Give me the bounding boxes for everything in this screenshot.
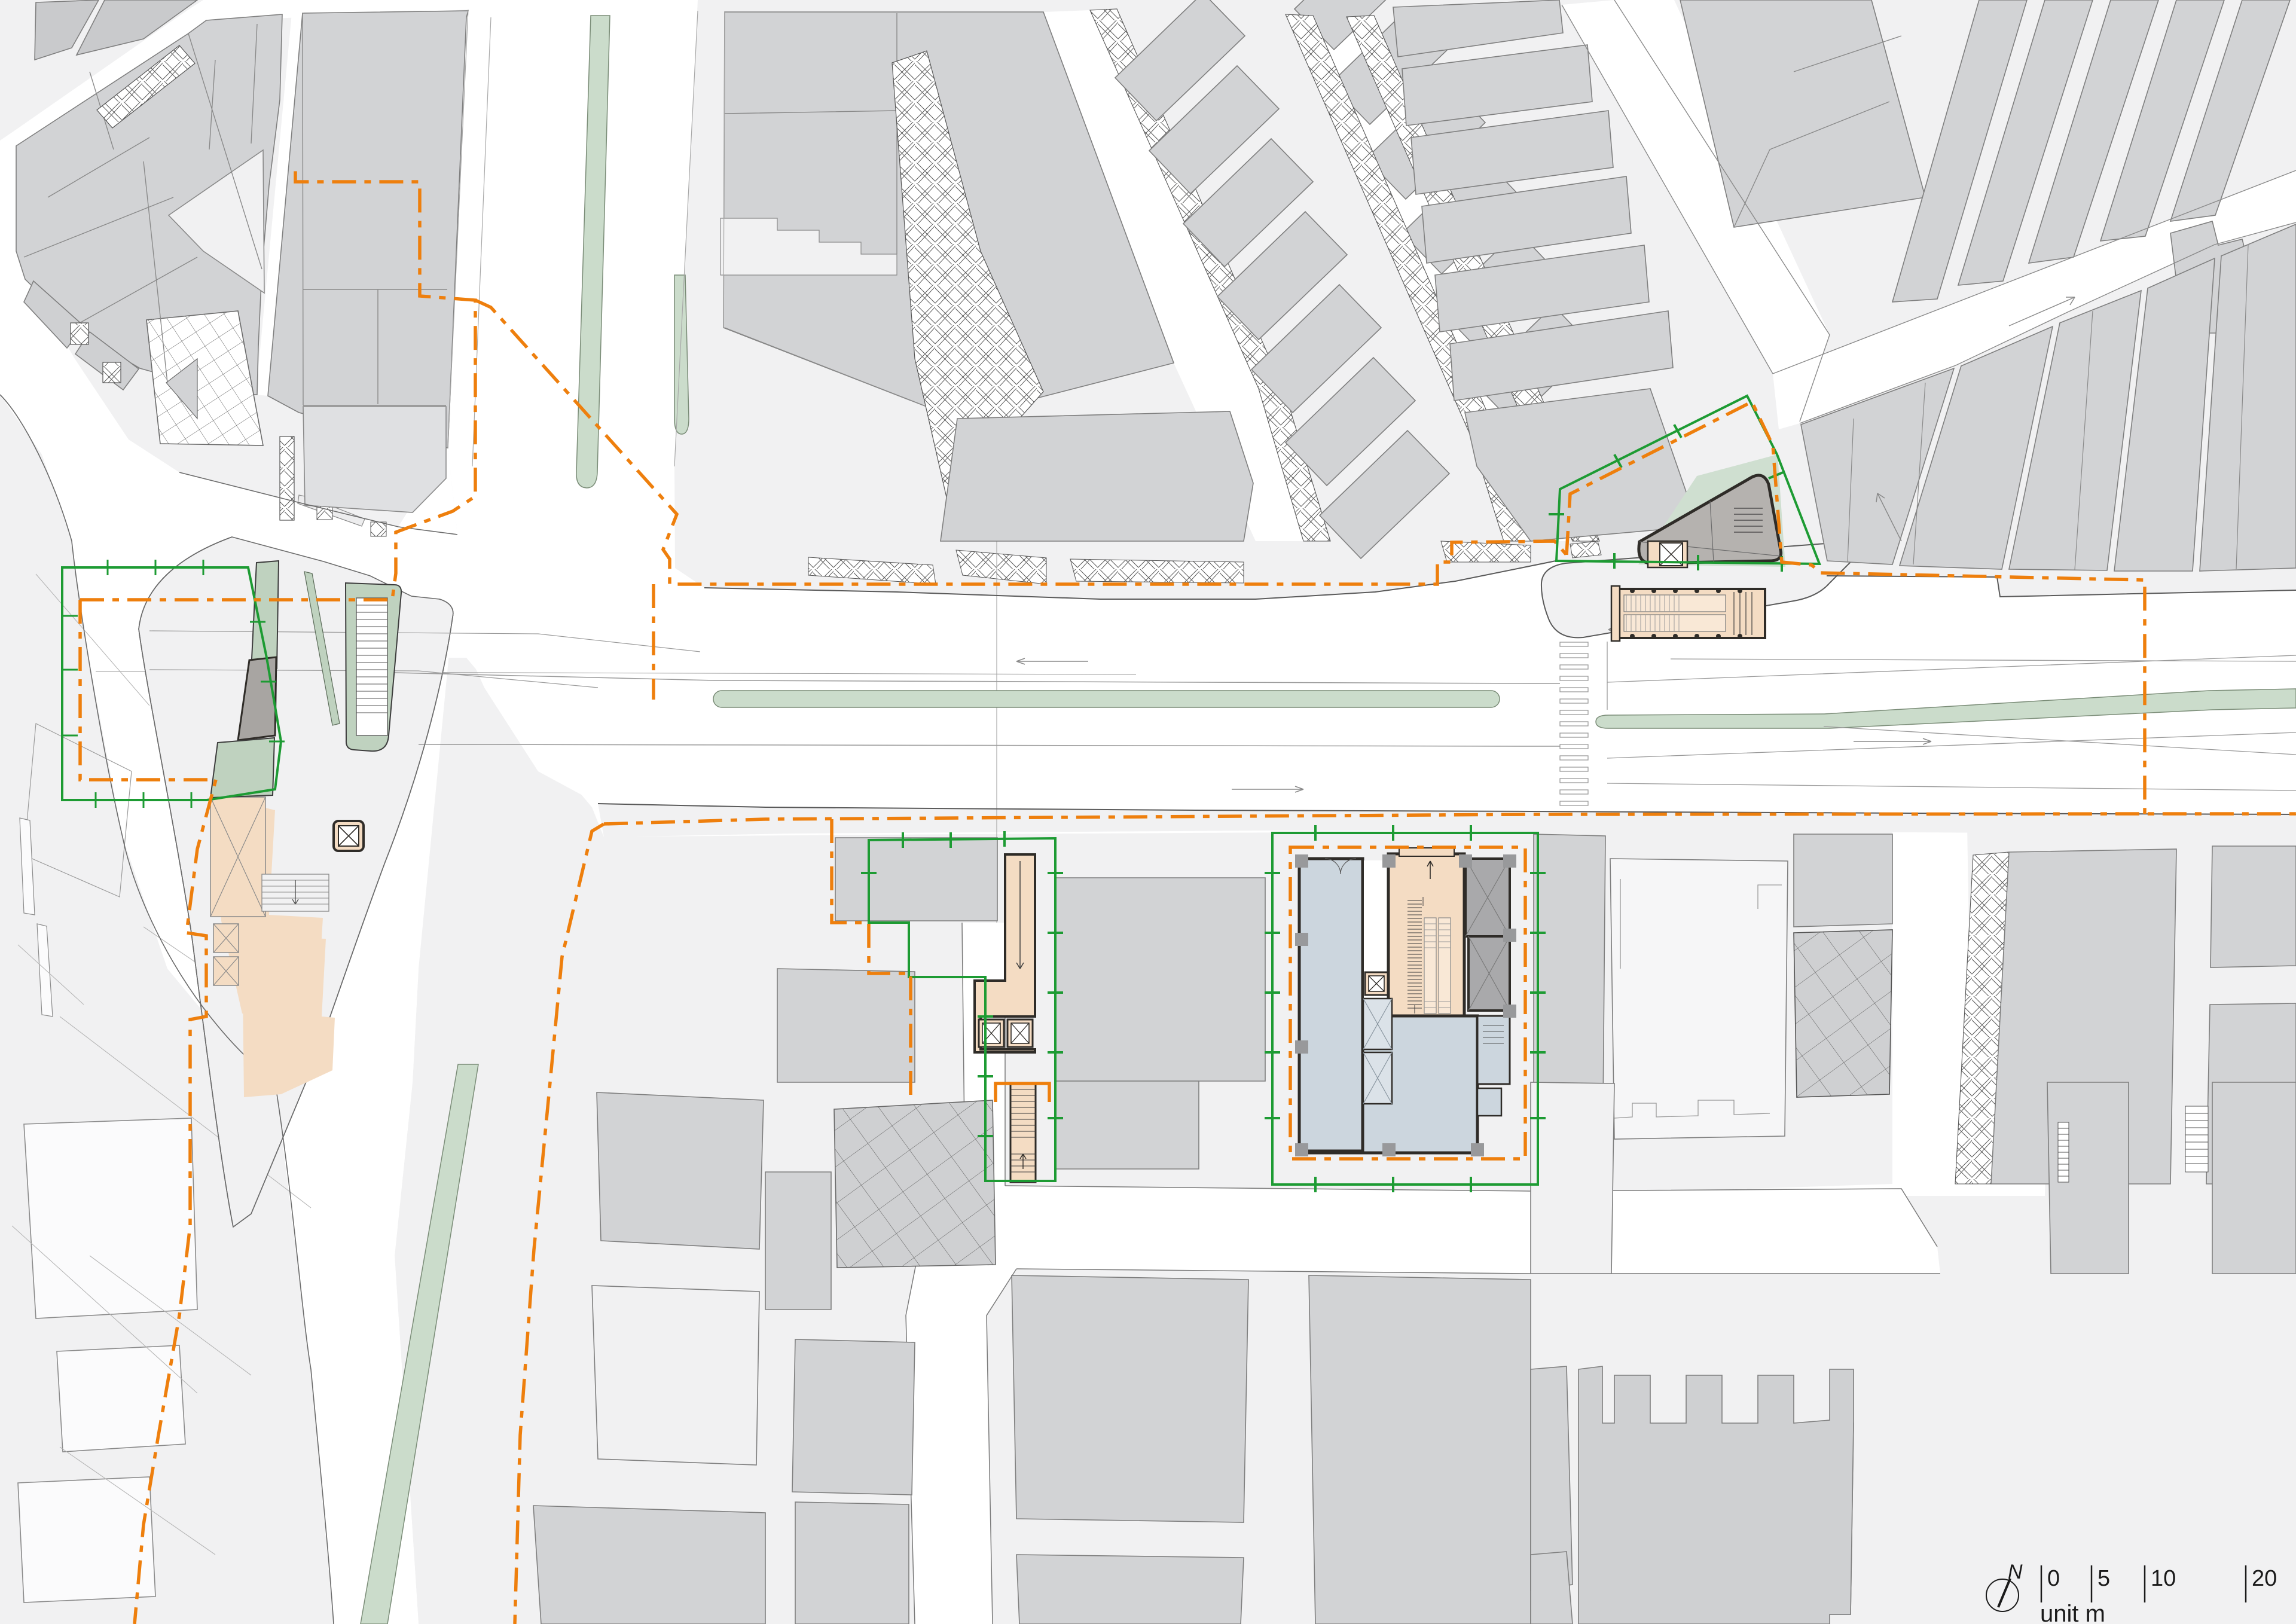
svg-text:0: 0 — [2047, 1566, 2060, 1591]
svg-text:20: 20 — [2252, 1566, 2277, 1591]
svg-text:5: 5 — [2097, 1566, 2110, 1591]
svg-text:unit m: unit m — [2040, 1601, 2105, 1624]
svg-text:10: 10 — [2151, 1566, 2176, 1591]
svg-text:N: N — [2008, 1561, 2023, 1583]
